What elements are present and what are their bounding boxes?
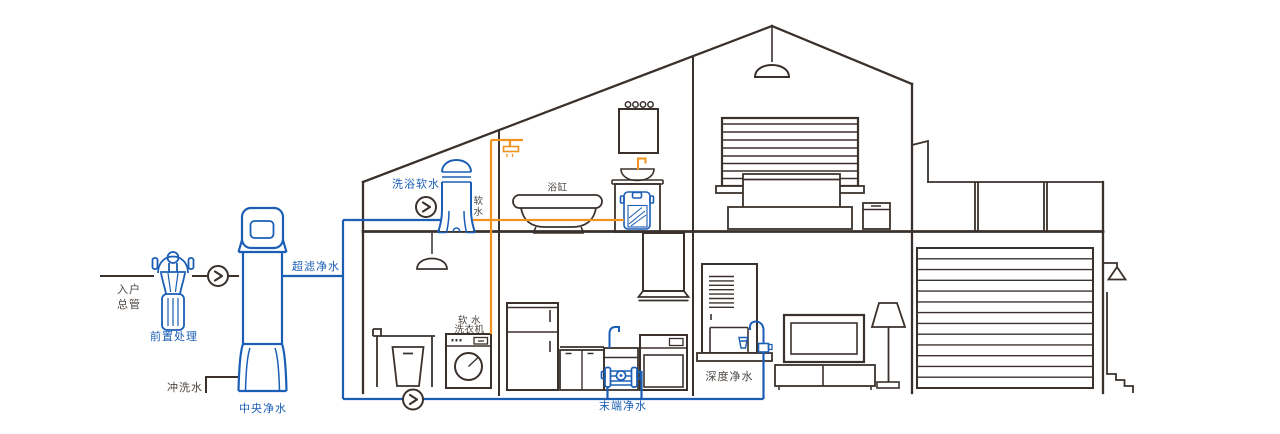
- bed-headboard: [743, 174, 840, 207]
- bathtub: [513, 195, 602, 233]
- wall-lamp-icon: [1103, 263, 1126, 280]
- station-shelf: [697, 353, 772, 361]
- roof-left-slope: [363, 26, 772, 182]
- flush-drain-pipe: [206, 377, 240, 393]
- mirror-light-icon: [625, 102, 630, 107]
- garage-door: [917, 248, 1093, 388]
- pendant-lamp-icon: [755, 65, 789, 77]
- range-hood: [639, 233, 689, 301]
- bed-mattress: [728, 207, 852, 229]
- window-blind-slats: [722, 124, 858, 179]
- garage-door-slats: [917, 259, 1093, 377]
- flow-indicator-floor: [403, 390, 423, 410]
- central-purifier-device: [239, 208, 287, 391]
- label-terminal-purifier: 末端净水: [599, 399, 647, 413]
- range-oven: [640, 335, 687, 390]
- flow-indicator-inlet: [208, 266, 228, 286]
- label-flush-water: 冲洗水: [167, 380, 203, 394]
- mirror-light-icon: [640, 102, 645, 107]
- laundry-room: [373, 233, 491, 388]
- laundry-basket: [393, 347, 424, 386]
- tv: [784, 315, 864, 362]
- annex-parapet: [912, 141, 928, 182]
- label-prefilter: 前置处理: [150, 329, 198, 343]
- kitchen-faucet-icon: [610, 327, 620, 348]
- label-inlet-main-line2: 总管: [117, 297, 141, 311]
- laundry-lamp-icon: [417, 259, 447, 270]
- shower-head-icon: [504, 147, 519, 152]
- wash-basin: [621, 169, 654, 181]
- outdoor-steps: [1107, 292, 1133, 393]
- kitchen: [507, 233, 689, 390]
- flow-indicator-softener: [416, 197, 436, 217]
- fridge: [507, 303, 558, 390]
- bath-softener-device: [438, 157, 475, 233]
- floor-lamp: [872, 303, 905, 388]
- house-water-system-diagram: 入户 总管 前置处理 冲洗水 中央净水 超滤净水 洗浴软水 软 水 浴缸 软 水…: [0, 0, 1280, 434]
- shower-branch-pipe: [491, 140, 523, 147]
- terminal-ro-device: [602, 368, 641, 388]
- label-central-purifier: 中央净水: [239, 401, 287, 415]
- base-cabinet: [560, 347, 604, 390]
- label-soft-water-char2: 水: [473, 206, 483, 218]
- annex-railing: [928, 182, 1103, 231]
- pre-filter-device: [153, 250, 194, 330]
- washing-machine: [446, 334, 491, 388]
- diagram-canvas: 入户 总管 前置处理 冲洗水 中央净水 超滤净水 洗浴软水 软 水 浴缸 软 水…: [0, 0, 1280, 434]
- label-soft-water-char1: 软: [473, 195, 483, 207]
- exterior-right: [1103, 263, 1133, 393]
- label-deep-purifier: 深度净水: [706, 369, 754, 383]
- label-bath-softener: 洗浴软水: [392, 177, 440, 191]
- laundry-bench: [373, 329, 435, 387]
- label-ultrafiltration: 超滤净水: [292, 259, 340, 273]
- label-bathtub: 浴缸: [547, 182, 567, 194]
- label-soft-washer-line2: 洗衣机: [454, 324, 484, 336]
- nightstand: [863, 203, 890, 229]
- mirror-light-icon: [648, 102, 653, 107]
- tv-stand: [775, 365, 875, 390]
- under-sink-purifier-device: [621, 192, 654, 229]
- roof-right-slope: [772, 26, 912, 84]
- label-inlet-main-line1: 入户: [117, 282, 141, 296]
- mirror-cabinet: [619, 102, 658, 153]
- bedroom: [716, 26, 890, 229]
- mirror-light-icon: [633, 102, 638, 107]
